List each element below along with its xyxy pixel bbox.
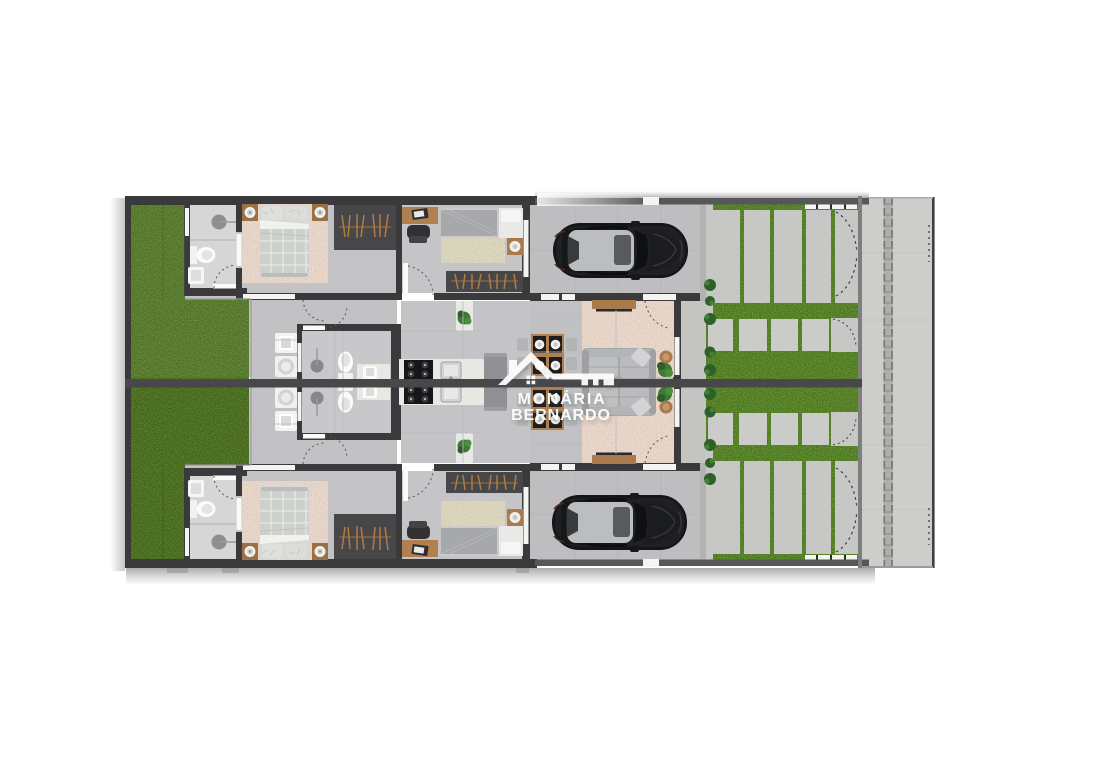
svg-text:BERNARDO: BERNARDO	[511, 407, 611, 424]
svg-text:MONÁRIA: MONÁRIA	[517, 389, 606, 408]
